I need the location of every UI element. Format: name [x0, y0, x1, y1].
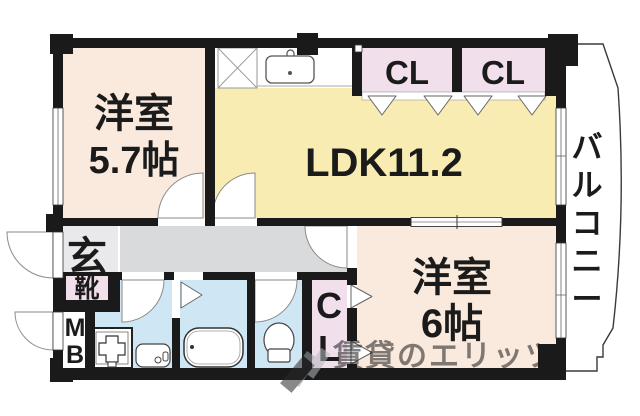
- entrance-label: 玄: [67, 235, 107, 279]
- meter-box-label: MB: [65, 314, 86, 369]
- entrance-door-opening: [53, 232, 63, 278]
- floor-plan-canvas: 洋室 5.7帖 LDK11.2 洋室 6帖 CL CL 玄 靴 MB CL バル…: [0, 0, 640, 416]
- bathtub-faucet: [190, 345, 194, 349]
- bedroom1-size-label: 5.7帖: [89, 140, 180, 182]
- washbasin-faucet: [163, 352, 168, 361]
- washbasin-drain: [155, 357, 161, 363]
- kitchen-sink-icon: [266, 56, 314, 83]
- ldk-label: LDK11.2: [305, 141, 463, 185]
- balcony-label: バルコニー: [572, 130, 603, 317]
- floor-plan: 洋室 5.7帖 LDK11.2 洋室 6帖 CL CL 玄 靴 MB CL バル…: [0, 0, 640, 416]
- shoe-cabinet-label: 靴: [74, 275, 99, 303]
- wall-notch: [355, 45, 362, 52]
- closet-upper-left-label: CL: [385, 54, 429, 91]
- bedroom2-name-label: 洋室: [412, 256, 492, 300]
- kitchen-drain-icon: [288, 71, 292, 75]
- closet-upper-right-label: CL: [481, 54, 525, 91]
- toilet-tank: [268, 349, 290, 362]
- watermark-text: 賃貸のエリッツ: [332, 339, 557, 373]
- bedroom1-name-label: 洋室: [94, 92, 174, 136]
- meter-box-door-opening: [53, 312, 63, 350]
- washing-machine-tap: [108, 362, 116, 367]
